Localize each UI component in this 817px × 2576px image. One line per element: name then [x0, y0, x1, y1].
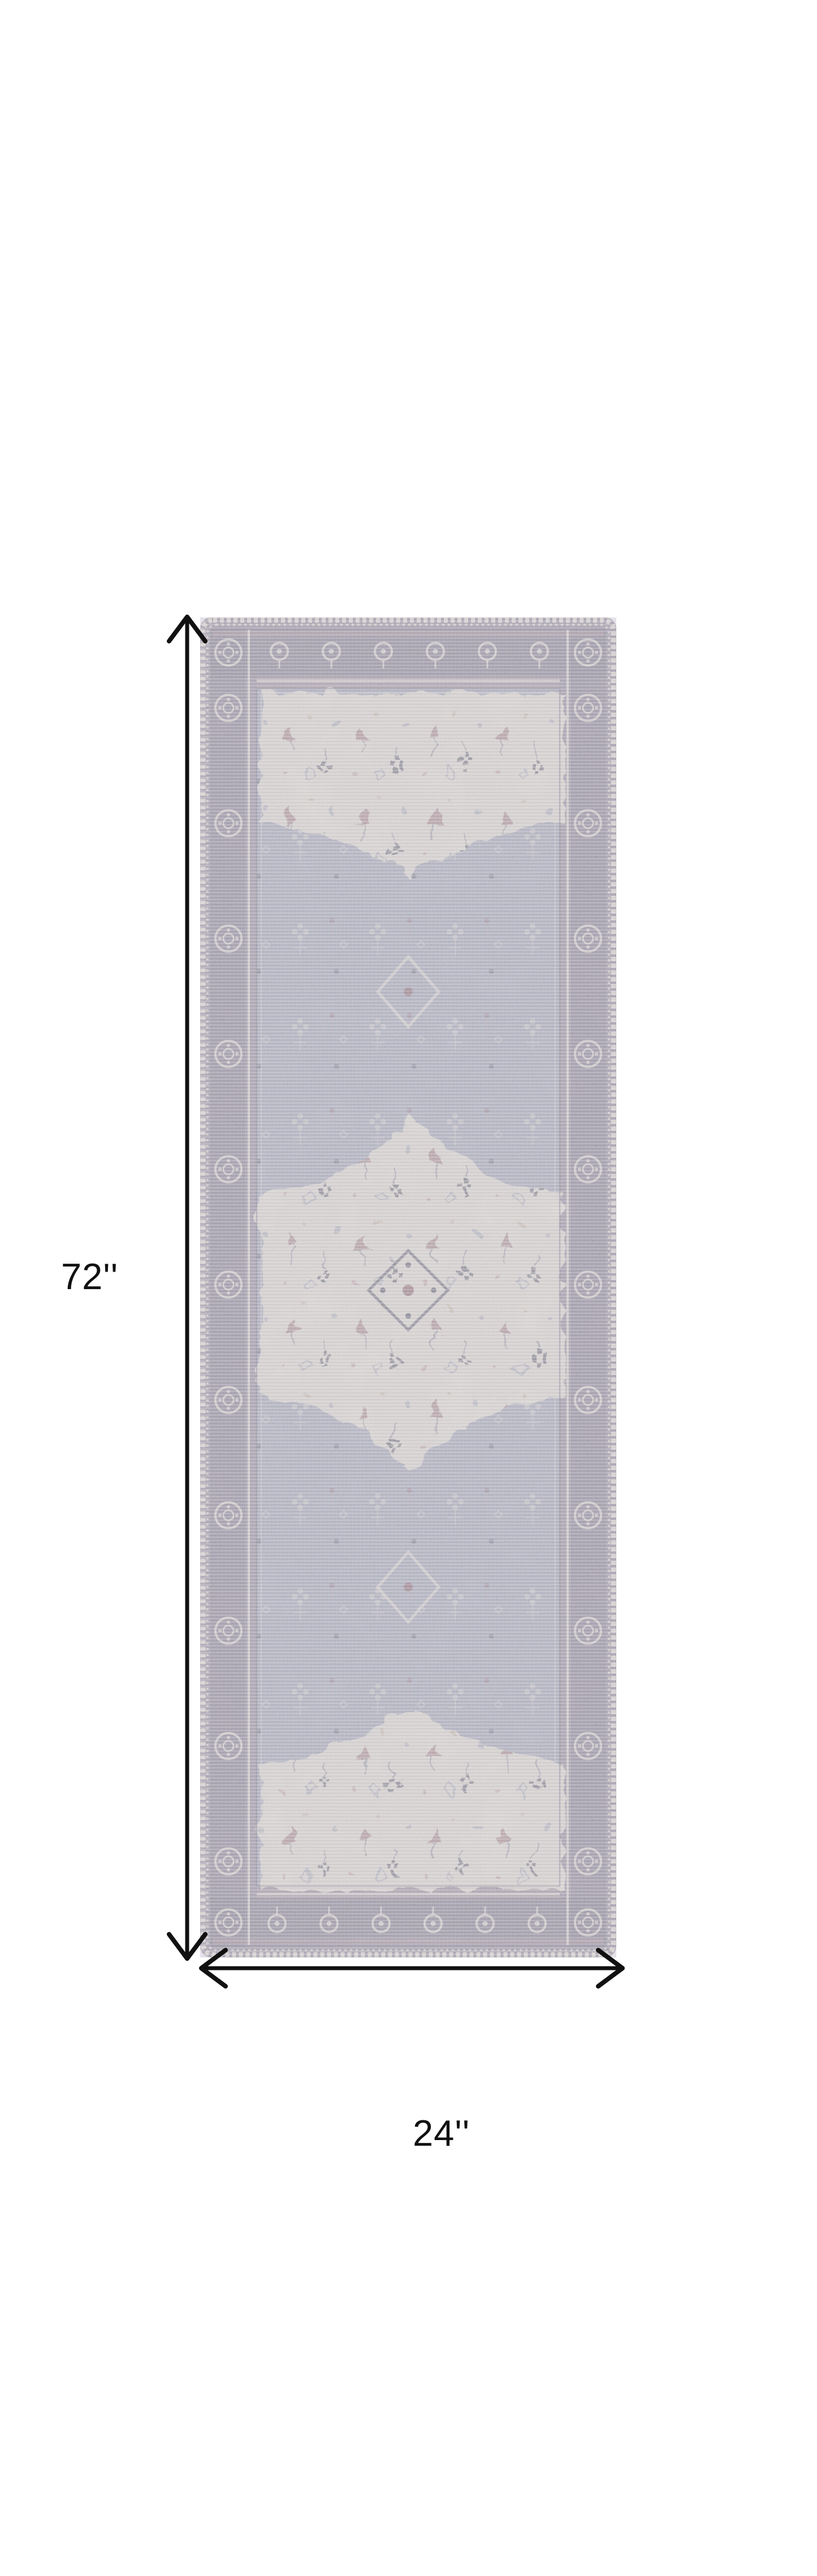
height-dimension-label: 72'': [61, 1258, 118, 1295]
rug-image: [200, 617, 616, 1957]
width-dimension-label: 24'': [413, 2115, 470, 2151]
product-dimension-image: 72'' 24'': [0, 0, 817, 2576]
height-dimension-arrow: [169, 617, 205, 1959]
dimension-diagram-svg: [0, 0, 817, 2576]
